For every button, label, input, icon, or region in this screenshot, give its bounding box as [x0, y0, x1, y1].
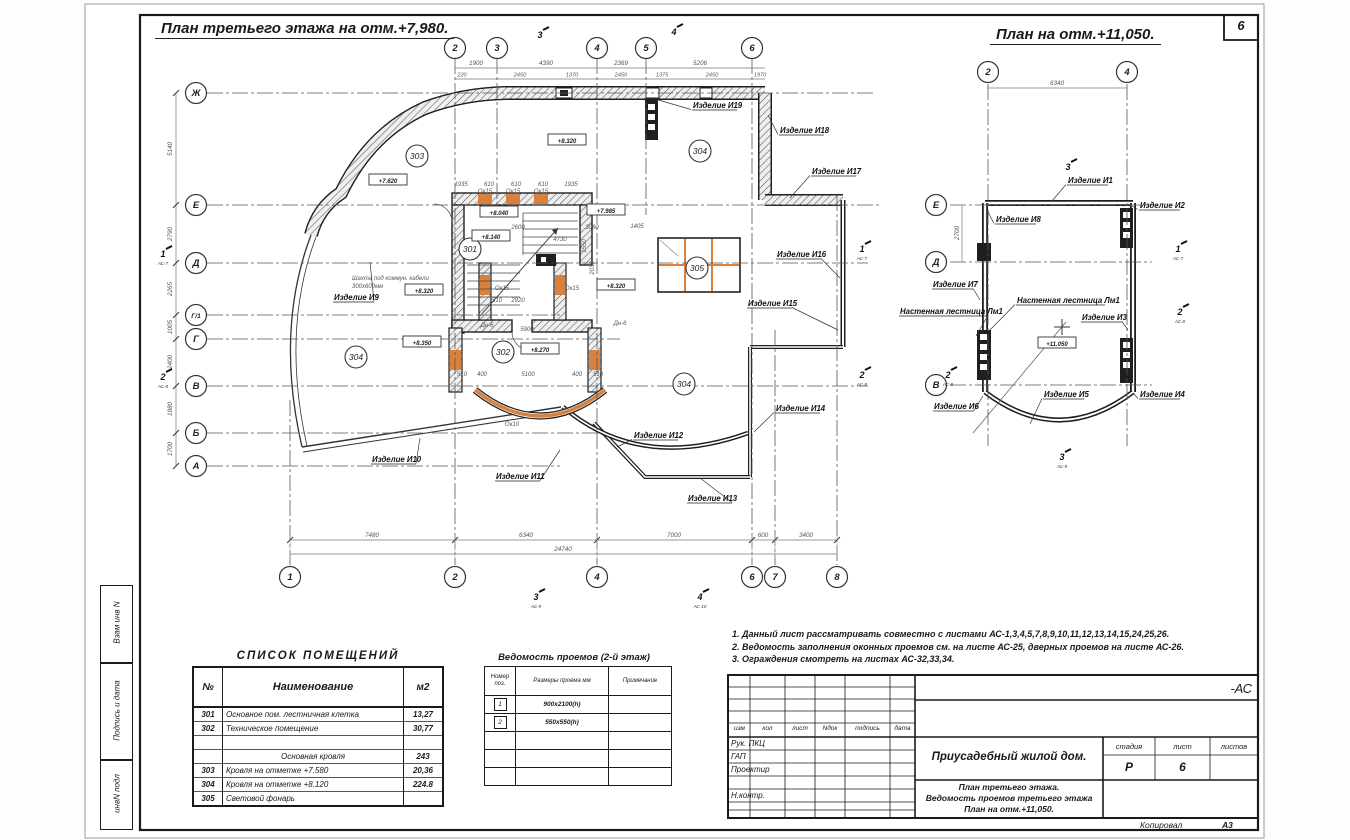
table-row: 302Техническое помещение30,77 [193, 722, 443, 736]
room-number: 304 [693, 146, 707, 156]
axis-label: А [192, 461, 200, 472]
section-mark: 3 [1059, 452, 1064, 462]
elevation-value: +8.350 [413, 341, 432, 347]
axis-label: 2 [451, 43, 458, 54]
table-cell [609, 768, 672, 786]
section-sheet-ref: АС-8 [942, 382, 954, 387]
sheets-label: листов [1211, 742, 1257, 751]
openings-table: Номер поз.Размеры проема ммПримечание190… [484, 666, 672, 786]
dim-text: 510 [457, 372, 468, 378]
dim-text: 2600 [510, 225, 525, 231]
table-row: 303Кровля на отметке +7.58020,36 [193, 764, 443, 778]
rooms-table-header: № [193, 667, 223, 707]
table-cell: 30,77 [404, 722, 444, 736]
axis-label: 6 [749, 43, 755, 54]
col-izm: изм [729, 725, 750, 732]
elevation-value: +8.320 [415, 289, 434, 295]
product-label: Изделие И13 [688, 494, 738, 503]
dim-text: 2400 [167, 355, 174, 371]
elevation-value: +8.270 [531, 348, 550, 354]
note-3: 3. Ограждения смотреть на листах АС-32,3… [732, 653, 1184, 666]
stamp-cell-1: Взам инв N [113, 583, 122, 663]
dim-text: Дн-6 [613, 321, 628, 327]
dim-text: 2920 [510, 298, 525, 304]
section-sheet-ref: АС-7 [157, 261, 169, 266]
axis-label: В [193, 381, 200, 392]
axis-label: Е [933, 200, 940, 211]
axis-label: 2 [984, 67, 991, 78]
rooms-table: №Наименованием2301Основное пом. лестничн… [192, 666, 444, 807]
dim-text: 300х600мм [352, 284, 383, 290]
role-ruk: Рук. ПКЦ [731, 739, 765, 748]
section-sheet-ref: АС-7 [856, 256, 868, 261]
dim-text: 1935 [454, 182, 468, 188]
product-label: Изделие И18 [780, 126, 830, 135]
table-row: 304Кровля на отметке +8.120224.8 [193, 778, 443, 792]
dim-text: 6340 [1050, 80, 1065, 87]
room-number: 304 [677, 379, 691, 389]
product-label: Изделие И11 [496, 472, 545, 481]
col-data: дата [891, 725, 914, 732]
table-row: 1900х2100(h) [485, 696, 672, 714]
dim-text: 1970 [754, 73, 767, 79]
note-1: 1. Данный лист рассматривать совместно с… [732, 628, 1184, 641]
elevation-value: +7.985 [597, 209, 616, 215]
table-cell: 550х550(h) [516, 714, 609, 732]
openings-table-title: Ведомость проемов (2-й этаж) [484, 652, 664, 663]
elevation-value: +8.320 [607, 284, 626, 290]
section-mark: 2 [1176, 307, 1182, 317]
table-row [485, 768, 672, 786]
notes: 1. Данный лист рассматривать совместно с… [732, 628, 1184, 666]
axis-label: Г/1 [191, 313, 201, 320]
product-label: Изделие И8 [996, 215, 1041, 224]
table-row: Основная кровля243 [193, 750, 443, 764]
sheet-value: 6 [1156, 760, 1209, 774]
section-mark: 2 [858, 370, 864, 380]
dim-text: 2450 [513, 73, 527, 79]
copied-label: Копировал [1140, 820, 1182, 830]
table-cell: 13,27 [404, 707, 444, 722]
dim-text: Ок15 [534, 189, 549, 195]
table-cell: Кровля на отметке +8.120 [223, 778, 404, 792]
dim-text: 6340 [519, 532, 534, 539]
dim-text: 220 [456, 73, 467, 79]
table-cell: Кровля на отметке +7.580 [223, 764, 404, 778]
table-cell [223, 736, 404, 750]
section-sheet-ref: АС-8 [157, 384, 169, 389]
table-cell [193, 750, 223, 764]
stage-label: стадия [1104, 742, 1154, 751]
elevation-value: +7.620 [379, 179, 398, 185]
section-mark: 1 [160, 249, 165, 259]
product-label: Изделие И6 [934, 402, 979, 411]
dim-text: Ок15 [478, 189, 493, 195]
axis-label: 4 [593, 43, 600, 54]
axis-label: В [933, 380, 940, 391]
dim-text: 1405 [630, 224, 644, 230]
product-label: Изделие И15 [748, 299, 798, 308]
dim-text: 2030 [590, 261, 596, 276]
table-cell [516, 768, 609, 786]
axis-label: 4 [593, 572, 600, 583]
axis-label: 4 [1123, 67, 1130, 78]
section-sheet-ref: АС-8 [856, 382, 868, 387]
sheet-title: План третьего этажа. Ведомость проемов т… [918, 782, 1100, 815]
openings-table-header: Номер поз. [485, 667, 516, 696]
project-name: Приусадебный жилой дом. [918, 751, 1100, 763]
dim-text: Ок15 [506, 189, 521, 195]
dim-text: 1880 [167, 402, 174, 417]
dim-text: 1005 [167, 320, 174, 335]
table-cell: 243 [404, 750, 444, 764]
table-cell [485, 732, 516, 750]
axis-label: Ж [191, 88, 202, 99]
axis-label: Б [193, 428, 200, 439]
product-label: Изделие И1 [1068, 176, 1113, 185]
section-sheet-ref: АС-8 [1174, 319, 1186, 324]
table-cell [609, 732, 672, 750]
dim-text: Дн-6 [480, 323, 495, 329]
dim-text: 510 [593, 372, 604, 378]
position-number: 2 [494, 716, 507, 729]
dim-text: 1375 [656, 73, 669, 79]
dim-text: Ок15 [565, 286, 580, 292]
section-mark: 2 [159, 372, 165, 382]
section-sheet-ref: АС-9 [530, 604, 542, 609]
axis-label: Д [932, 257, 940, 268]
openings-table-header: Примечание [609, 667, 672, 696]
elevation-value: +8.320 [558, 139, 577, 145]
dim-text: 3400 [799, 532, 814, 539]
section-mark: 4 [670, 27, 676, 37]
product-label: Изделие И12 [634, 431, 684, 440]
dim-text: 1900 [469, 60, 484, 67]
sheet-label: лист [1156, 742, 1209, 751]
axis-label: 7 [772, 572, 778, 583]
product-label: Изделие И2 [1140, 201, 1185, 210]
rooms-table-header: Наименование [223, 667, 404, 707]
stamp-cell-2: Подпись и дата [113, 670, 122, 750]
dim-text: Ок15 [495, 286, 510, 292]
axis-label: Е [193, 200, 200, 211]
section-mark: 4 [696, 592, 702, 602]
col-list: лист [786, 725, 814, 732]
dim-text: 610 [538, 182, 549, 188]
room-number: 301 [463, 244, 477, 254]
elevation-value: +11.050 [1046, 342, 1068, 348]
table-cell [193, 736, 223, 750]
room-number: 305 [690, 263, 704, 273]
product-label: Изделие И10 [372, 455, 422, 464]
product-label: Изделие И17 [812, 167, 862, 176]
product-label: Изделие И4 [1140, 390, 1185, 399]
section-mark: 1 [1175, 244, 1180, 254]
table-cell [485, 750, 516, 768]
dim-text: 24740 [553, 546, 572, 553]
col-podpis: подпись [846, 725, 889, 732]
dim-text: 2265 [167, 282, 174, 298]
rooms-table-header: м2 [404, 667, 444, 707]
role-gap: ГАП [731, 752, 746, 761]
axis-label: Д [192, 258, 200, 269]
dim-text: Ок10 [505, 422, 520, 428]
col-kol: кол [751, 725, 784, 732]
dim-text: 400 [572, 372, 583, 378]
table-cell [516, 732, 609, 750]
stage-value: Р [1104, 760, 1154, 774]
product-label: Изделие И14 [776, 404, 826, 413]
axis-label: 2 [451, 572, 458, 583]
dim-text: Шахта под коммун. кабели [352, 276, 429, 282]
table-cell [609, 714, 672, 732]
table-cell [485, 768, 516, 786]
axis-label: 3 [494, 43, 500, 54]
product-label: Изделие И9 [334, 293, 379, 302]
dim-text: 1700 [167, 442, 174, 457]
room-number: 302 [496, 347, 510, 357]
product-label: Изделие И19 [693, 101, 743, 110]
table-cell [516, 750, 609, 768]
table-cell: Техническое помещение [223, 722, 404, 736]
dim-text: 7000 [667, 532, 682, 539]
dim-text: 400 [477, 372, 488, 378]
drawing-sheet: { "page":{"sheet_number":"6","format_lab… [0, 0, 1350, 840]
col-ndok: Nдок [816, 725, 844, 732]
dim-text: 1370 [566, 73, 579, 79]
elevation-value: +8.140 [482, 235, 501, 241]
dim-text: 1935 [564, 182, 578, 188]
format-label: А3 [1222, 820, 1233, 830]
openings-table-header: Размеры проема мм [516, 667, 609, 696]
table-cell [404, 792, 444, 807]
dim-text: 510 [492, 298, 503, 304]
table-cell: 20,36 [404, 764, 444, 778]
axis-label: 6 [749, 572, 755, 583]
table-cell: 305 [193, 792, 223, 807]
section-sheet-ref: АС-9 [1056, 464, 1068, 469]
dim-text: 7480 [365, 532, 380, 539]
table-cell: Основная кровля [223, 750, 404, 764]
table-row [485, 750, 672, 768]
dim-text: 1550 [582, 239, 588, 253]
dim-text: 2369 [613, 60, 629, 67]
role-nkontr: Н.контр. [731, 791, 765, 800]
upper-plan-title: План на отм.+11,050. [990, 26, 1161, 45]
table-cell: 303 [193, 764, 223, 778]
section-sheet-ref: АС-7 [1172, 256, 1184, 261]
axis-label: 8 [834, 572, 840, 583]
product-label: Изделие И3 [1082, 313, 1127, 322]
room-number: 304 [349, 352, 363, 362]
role-proektir: Проектир [731, 765, 770, 774]
dim-text: 610 [511, 182, 522, 188]
room-number: 303 [410, 151, 424, 161]
table-cell: Световой фонарь [223, 792, 404, 807]
section-mark: 2 [944, 370, 950, 380]
note-2: 2. Ведомость заполнения оконных проемов … [732, 641, 1184, 654]
axis-label: 1 [287, 572, 292, 583]
dim-text: 4730 [553, 237, 567, 243]
dim-text: 5900 [520, 327, 534, 333]
table-row: 2550х550(h) [485, 714, 672, 732]
table-row: 301Основное пом. лестничная клетка13,27 [193, 707, 443, 722]
table-cell [609, 696, 672, 714]
rooms-table-title: СПИСОК ПОМЕЩЕНИЙ [192, 650, 444, 662]
dim-text: 2790 [167, 227, 174, 243]
position-number: 1 [494, 698, 507, 711]
dim-text: 5140 [167, 142, 174, 157]
product-label: Изделие И5 [1044, 390, 1089, 399]
stamp-cell-3: инвN подл [113, 754, 122, 834]
dim-text: 2700 [954, 226, 961, 242]
product-label: Настенная лестница Лм1 [900, 307, 1003, 316]
section-sheet-ref: АС-10 [693, 604, 707, 609]
section-mark: 3 [533, 592, 538, 602]
table-cell: 302 [193, 722, 223, 736]
product-label: Настенная лестница Лм1 [1017, 296, 1120, 305]
product-label: Изделие И16 [777, 250, 827, 259]
dim-text: 2450 [705, 73, 719, 79]
elevation-value: +8.040 [490, 211, 509, 217]
dim-text: 600 [758, 532, 769, 539]
table-cell: 1 [485, 696, 516, 714]
table-cell: 301 [193, 707, 223, 722]
table-cell: 900х2100(h) [516, 696, 609, 714]
dim-text: 5100 [521, 372, 535, 378]
table-cell: 224.8 [404, 778, 444, 792]
table-cell: 2 [485, 714, 516, 732]
dim-text: 4390 [539, 60, 554, 67]
table-row [193, 736, 443, 750]
table-cell: Основное пом. лестничная клетка [223, 707, 404, 722]
dim-text: 5206 [693, 60, 708, 67]
table-row: 305Световой фонарь [193, 792, 443, 807]
product-label: Изделие И7 [933, 280, 978, 289]
section-mark: 3 [537, 30, 542, 40]
dim-text: 3080 [585, 225, 599, 231]
table-cell: 304 [193, 778, 223, 792]
section-mark: 1 [859, 244, 864, 254]
doc-code: -АС [1100, 681, 1252, 696]
section-mark: 3 [1065, 162, 1070, 172]
axis-label: 5 [643, 43, 649, 54]
main-plan-title: План третьего этажа на отм.+7,980. [155, 20, 454, 39]
dim-text: 2450 [614, 73, 628, 79]
dim-text: 610 [484, 182, 495, 188]
table-cell [404, 736, 444, 750]
sheet-number: 6 [1224, 18, 1258, 33]
table-cell [609, 750, 672, 768]
table-row [485, 732, 672, 750]
